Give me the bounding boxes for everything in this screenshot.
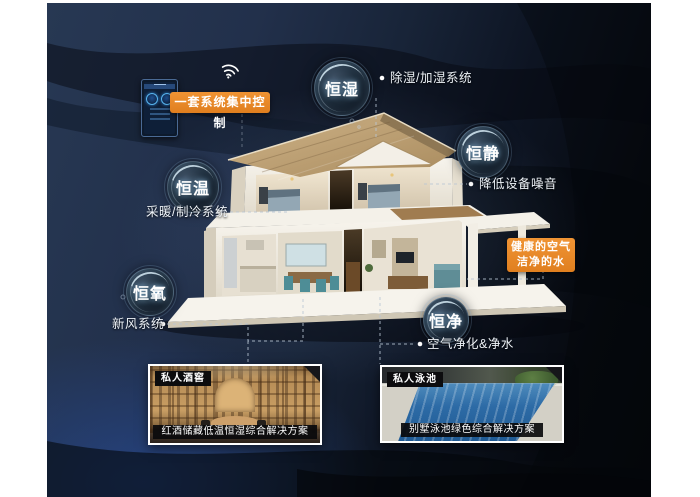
healthy-air-line: 健康的空气 xyxy=(507,240,575,255)
bubble-label: 恒湿 xyxy=(325,76,359,100)
controller-header xyxy=(144,84,175,89)
annotation-purify: 空气净化&净水 xyxy=(427,337,514,351)
bubble-label: 恒氧 xyxy=(133,280,167,304)
pool-tag: 私人泳池 xyxy=(387,372,443,387)
corner-ribbon xyxy=(546,367,562,383)
corner-ribbon xyxy=(304,366,320,382)
bubble-constant-humidity: 恒湿 xyxy=(314,60,370,116)
bubble-label: 恒净 xyxy=(429,308,463,332)
annotation-noise: 降低设备噪音 xyxy=(479,177,557,191)
bubble-label: 恒静 xyxy=(466,140,500,164)
annotation-hvac: 采暖/制冷系统 xyxy=(146,205,228,219)
wine-cellar-caption: 红酒储藏低温恒湿综合解决方案 xyxy=(153,425,317,439)
bubble-constant-quiet: 恒静 xyxy=(457,126,509,178)
poster-stage: 一套系统集中控制 健康的空气 洁净的水 恒湿 恒静 恒温 恒氧 恒净 除湿/加湿… xyxy=(0,0,700,497)
healthy-air-water-label: 健康的空气 洁净的水 xyxy=(507,238,575,272)
wine-cellar-card: 私人酒窖 红酒储藏低温恒湿综合解决方案 xyxy=(148,364,322,445)
annotation-dehumidify: 除湿/加湿系统 xyxy=(390,71,472,85)
wine-cellar-tag: 私人酒窖 xyxy=(155,371,211,386)
wine-rack-arch xyxy=(215,378,255,412)
pool-card: 私人泳池 别墅泳池绿色综合解决方案 xyxy=(380,365,564,443)
controller-dial xyxy=(146,93,158,105)
central-control-label: 一套系统集中控制 xyxy=(170,92,270,113)
annotation-fresh-air: 新风系统 xyxy=(112,317,164,331)
bubble-constant-oxygen: 恒氧 xyxy=(126,268,174,316)
pool-caption: 别墅泳池绿色综合解决方案 xyxy=(401,423,543,437)
bubble-label: 恒温 xyxy=(176,175,210,199)
clean-water-line: 洁净的水 xyxy=(507,255,575,270)
